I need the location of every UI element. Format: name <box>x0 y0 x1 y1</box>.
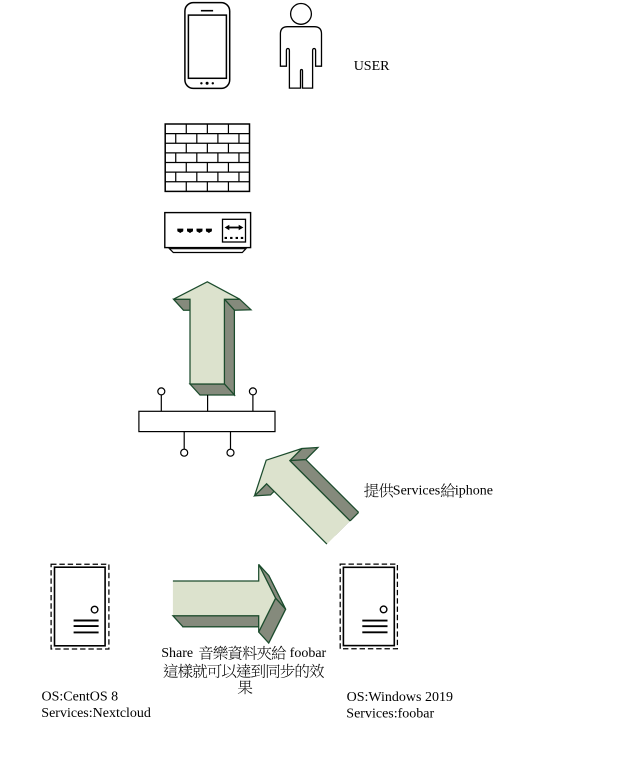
svg-text:OS:Windows 2019: OS:Windows 2019 <box>347 690 453 705</box>
svg-text:OS:CentOS 8: OS:CentOS 8 <box>42 689 119 704</box>
svg-text:Share: Share <box>161 646 193 661</box>
svg-text:foobar: foobar <box>290 646 327 661</box>
svg-text:Services: Services <box>393 484 440 499</box>
svg-text:USER: USER <box>354 59 390 74</box>
svg-text:Services:foobar: Services:foobar <box>346 706 434 721</box>
svg-text:Services:Nextcloud: Services:Nextcloud <box>41 706 151 721</box>
svg-text:iphone: iphone <box>455 484 493 499</box>
